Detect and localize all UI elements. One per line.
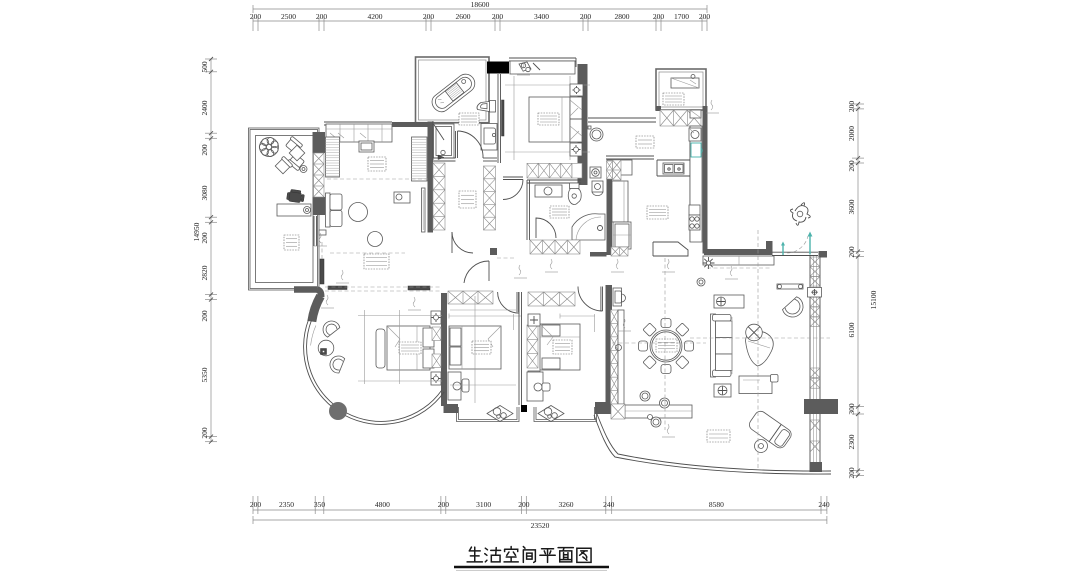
svg-text:200: 200	[438, 500, 450, 509]
svg-text:5350: 5350	[200, 367, 209, 382]
svg-text:18600: 18600	[471, 0, 490, 9]
svg-text:2600: 2600	[456, 12, 471, 21]
svg-text:240: 240	[818, 500, 830, 509]
svg-text:3100: 3100	[476, 500, 491, 509]
svg-text:4200: 4200	[368, 12, 383, 21]
svg-text:200: 200	[316, 12, 328, 21]
svg-text:200: 200	[653, 12, 665, 21]
svg-text:200: 200	[847, 101, 856, 113]
svg-text:200: 200	[200, 232, 209, 244]
svg-text:2000: 2000	[847, 126, 856, 141]
svg-text:6100: 6100	[847, 322, 856, 337]
svg-text:8580: 8580	[709, 500, 724, 509]
svg-text:2350: 2350	[279, 500, 294, 509]
svg-text:4800: 4800	[375, 500, 390, 509]
svg-text:350: 350	[314, 500, 326, 509]
svg-text:200: 200	[492, 12, 504, 21]
svg-text:2800: 2800	[615, 12, 630, 21]
svg-text:23520: 23520	[531, 521, 550, 530]
svg-text:240: 240	[603, 500, 615, 509]
svg-text:200: 200	[847, 246, 856, 258]
svg-text:200: 200	[699, 12, 711, 21]
svg-text:3260: 3260	[559, 500, 574, 509]
svg-text:1700: 1700	[674, 12, 689, 21]
svg-text:500: 500	[200, 61, 209, 73]
svg-text:2300: 2300	[847, 434, 856, 449]
svg-text:200: 200	[580, 12, 592, 21]
svg-text:2500: 2500	[281, 12, 296, 21]
svg-text:300: 300	[847, 403, 856, 415]
svg-text:2400: 2400	[200, 100, 209, 115]
svg-text:2820: 2820	[200, 265, 209, 280]
svg-text:200: 200	[847, 160, 856, 172]
svg-text:200: 200	[200, 310, 209, 322]
svg-text:200: 200	[518, 500, 530, 509]
svg-text:15100: 15100	[869, 290, 878, 309]
svg-text:3080: 3080	[200, 185, 209, 200]
svg-text:200: 200	[250, 500, 262, 509]
svg-text:200: 200	[847, 467, 856, 479]
svg-text:200: 200	[423, 12, 435, 21]
svg-text:200: 200	[200, 144, 209, 156]
svg-text:200: 200	[250, 12, 262, 21]
svg-text:3400: 3400	[534, 12, 549, 21]
svg-text:200: 200	[200, 427, 209, 439]
svg-text:3600: 3600	[847, 199, 856, 214]
